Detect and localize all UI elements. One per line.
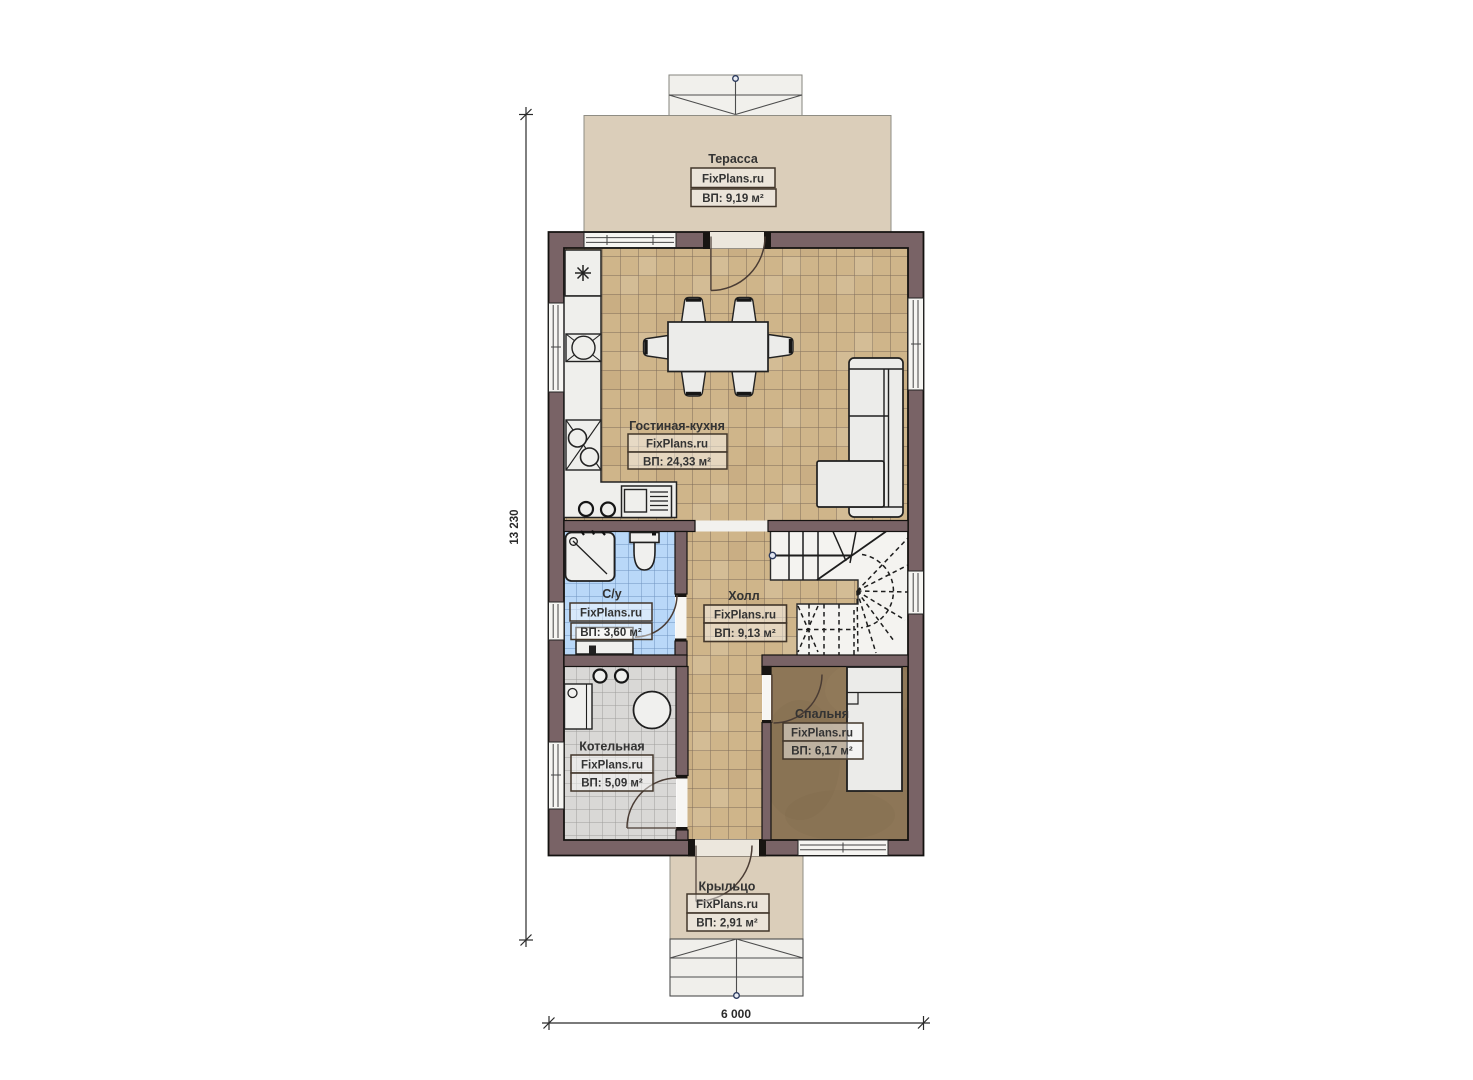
- svg-text:ВП: 2,91 м²: ВП: 2,91 м²: [696, 918, 758, 930]
- svg-text:FixPlans.ru: FixPlans.ru: [646, 439, 708, 451]
- svg-text:Терасса: Терасса: [708, 152, 759, 166]
- svg-text:ВП: 9,13 м²: ВП: 9,13 м²: [714, 628, 776, 640]
- svg-text:FixPlans.ru: FixPlans.ru: [581, 760, 643, 772]
- svg-text:ВП: 24,33 м²: ВП: 24,33 м²: [643, 457, 711, 469]
- svg-text:Спальня: Спальня: [795, 707, 849, 721]
- svg-text:ВП: 5,09 м²: ВП: 5,09 м²: [581, 778, 643, 790]
- svg-text:Котельная: Котельная: [579, 740, 644, 754]
- svg-text:ВП: 3,60 м²: ВП: 3,60 м²: [580, 627, 642, 639]
- svg-text:FixPlans.ru: FixPlans.ru: [791, 728, 853, 740]
- svg-text:FixPlans.ru: FixPlans.ru: [714, 610, 776, 622]
- svg-text:6 000: 6 000: [721, 1007, 751, 1021]
- svg-text:Холл: Холл: [728, 589, 759, 603]
- svg-text:Крыльцо: Крыльцо: [699, 880, 756, 894]
- svg-text:ВП: 6,17 м²: ВП: 6,17 м²: [791, 746, 853, 758]
- svg-text:FixPlans.ru: FixPlans.ru: [696, 899, 758, 911]
- svg-text:FixPlans.ru: FixPlans.ru: [580, 608, 642, 620]
- svg-text:13 230: 13 230: [509, 509, 521, 544]
- svg-text:Гостиная-кухня: Гостиная-кухня: [629, 419, 725, 433]
- svg-text:С/у: С/у: [602, 587, 622, 601]
- svg-text:FixPlans.ru: FixPlans.ru: [702, 174, 764, 186]
- svg-text:ВП: 9,19 м²: ВП: 9,19 м²: [702, 193, 764, 205]
